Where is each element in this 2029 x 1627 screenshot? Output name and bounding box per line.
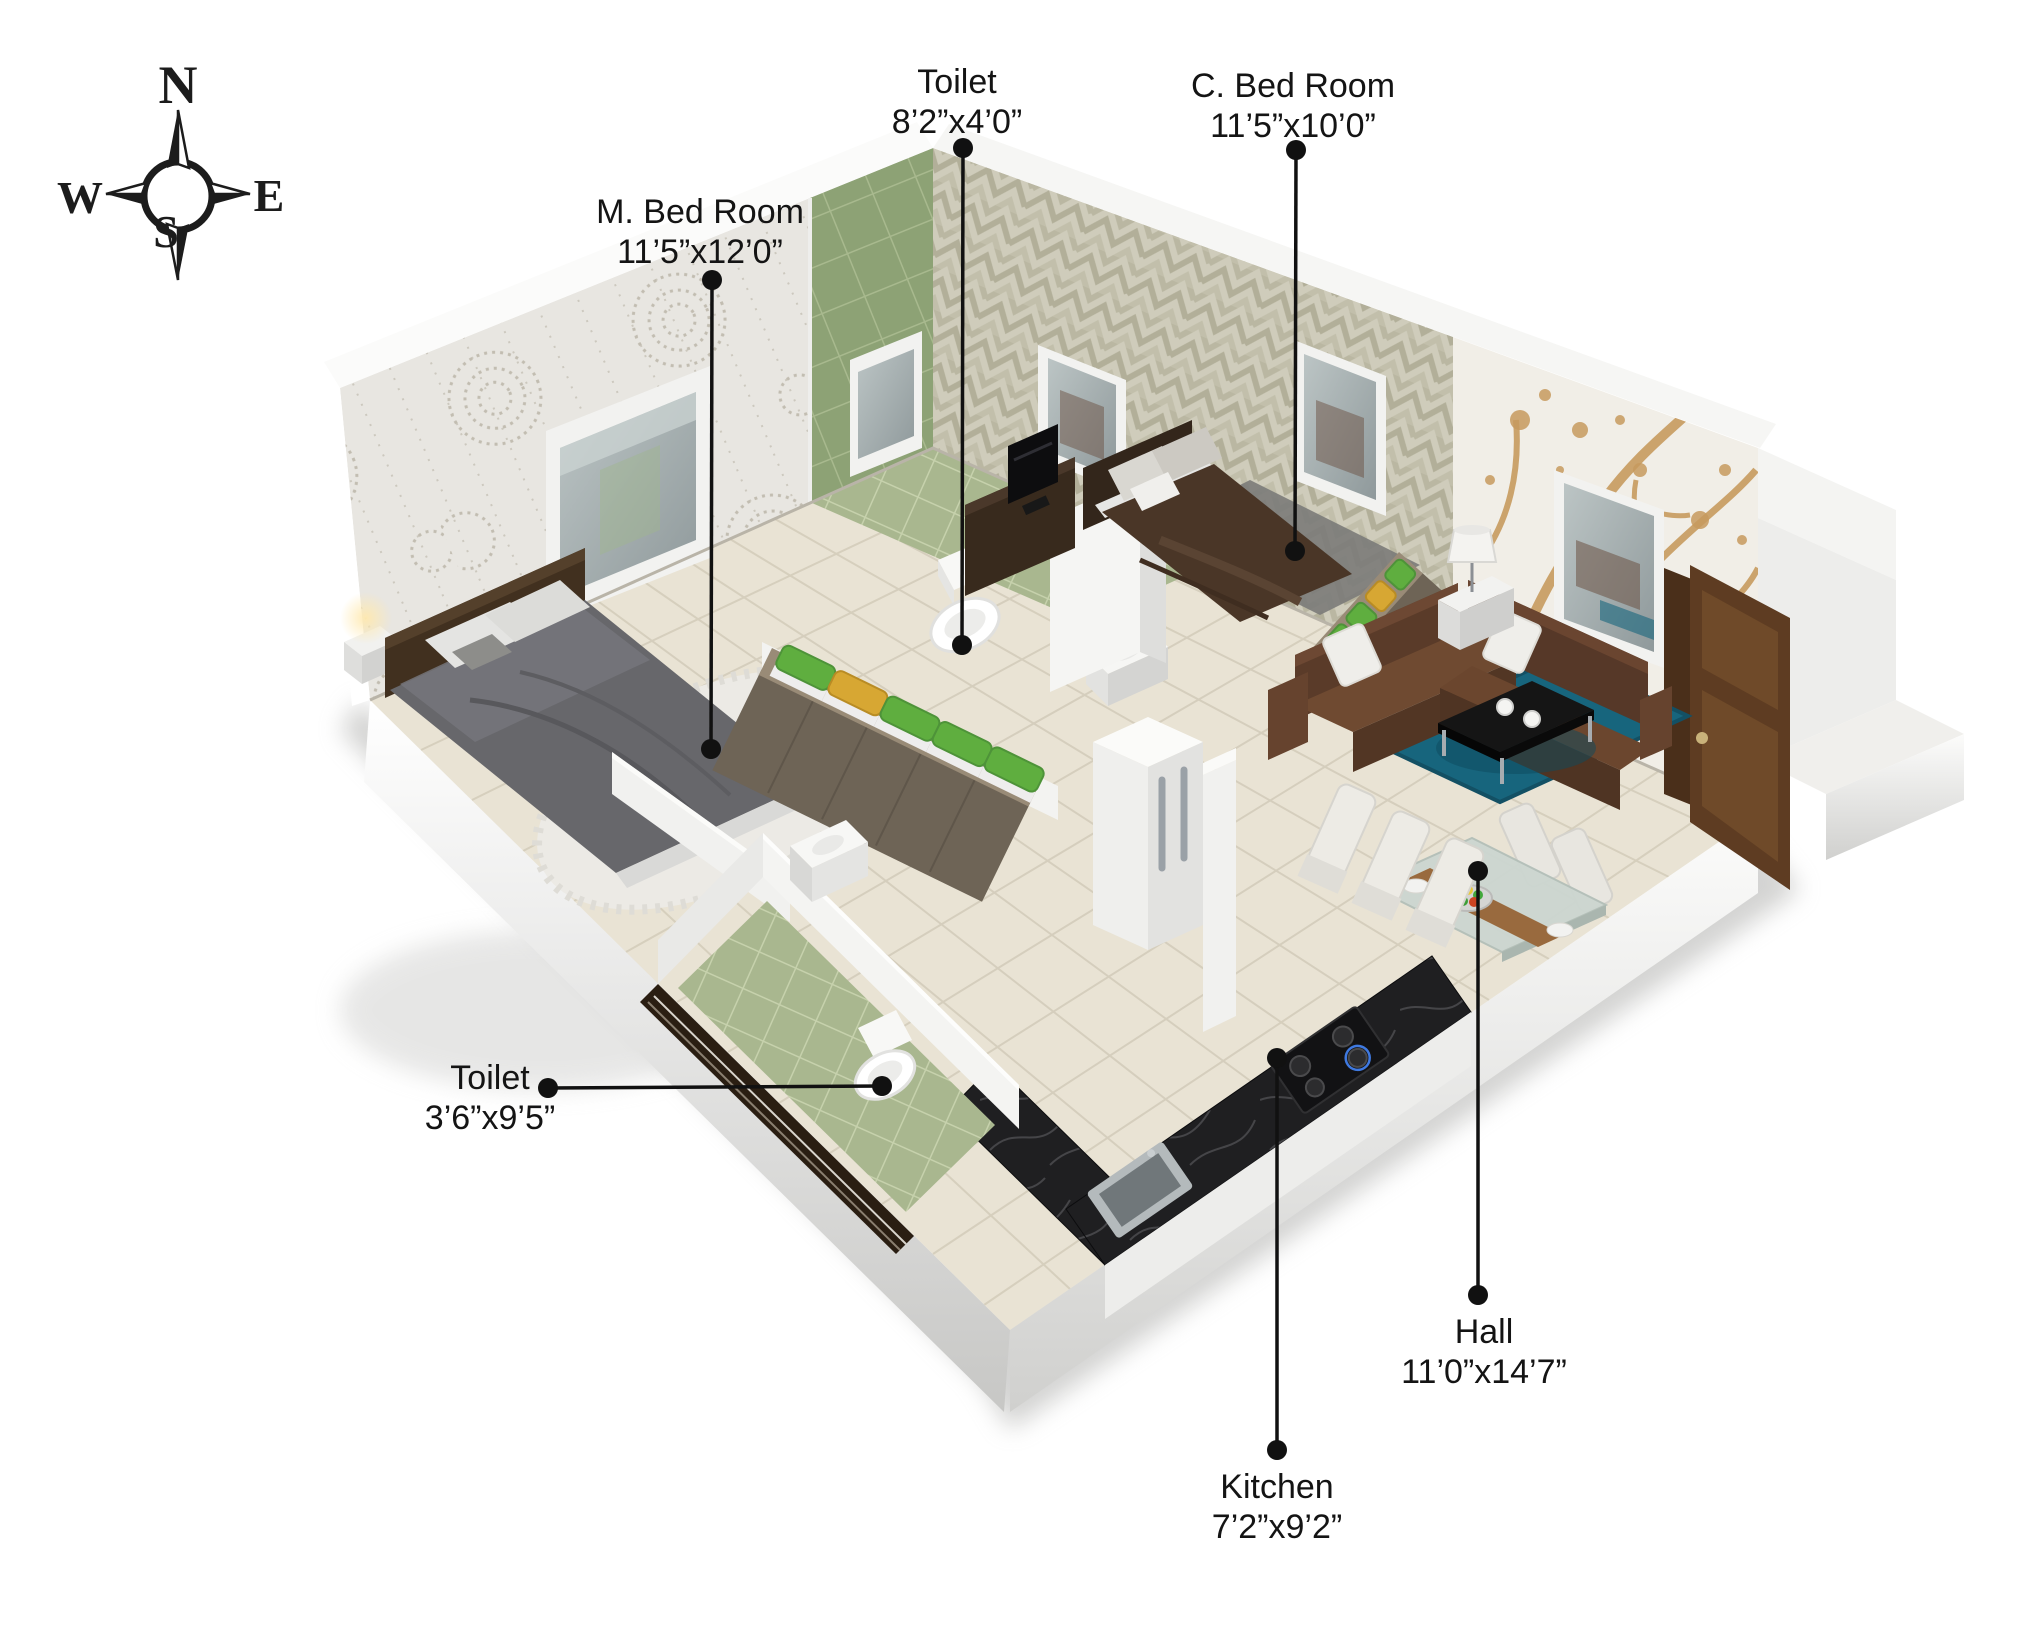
compass-e: E xyxy=(254,170,285,221)
floor-plan-page: N W E S Toilet 8’2”x4’0” C. Bed Room 11’… xyxy=(0,0,2029,1627)
label-toilet-top: Toilet 8’2”x4’0” xyxy=(892,62,1022,142)
label-hall: Hall 11’0”x14’7” xyxy=(1401,1312,1567,1392)
room-name: Hall xyxy=(1401,1312,1567,1352)
compass-w: W xyxy=(57,172,103,223)
room-name: C. Bed Room xyxy=(1191,66,1395,106)
label-m-bed-room: M. Bed Room 11’5”x12’0” xyxy=(596,192,804,272)
label-toilet-left: Toilet 3’6”x9’5” xyxy=(425,1058,555,1138)
compass-s: S xyxy=(153,206,179,257)
isometric-floor-plan: N W E S xyxy=(0,0,2029,1627)
room-name: Kitchen xyxy=(1212,1467,1342,1507)
bedside-lamp-icon xyxy=(340,592,392,644)
cup-icon xyxy=(1524,711,1540,727)
room-dims: 11’5”x12’0” xyxy=(596,232,804,272)
compass-rose: N W E S xyxy=(57,55,284,280)
kitchen-wall xyxy=(1203,760,1236,1032)
room-name: Toilet xyxy=(892,62,1022,102)
compass-n: N xyxy=(159,55,198,115)
label-kitchen: Kitchen 7’2”x9’2” xyxy=(1212,1467,1342,1547)
room-dims: 3’6”x9’5” xyxy=(425,1098,555,1138)
room-name: M. Bed Room xyxy=(596,192,804,232)
cup-icon xyxy=(1497,699,1513,715)
room-dims: 11’5”x10’0” xyxy=(1191,106,1395,146)
room-dims: 11’0”x14’7” xyxy=(1401,1352,1567,1392)
room-dims: 7’2”x9’2” xyxy=(1212,1507,1342,1547)
fridge xyxy=(1093,717,1203,950)
room-dims: 8’2”x4’0” xyxy=(892,102,1022,142)
label-c-bed-room: C. Bed Room 11’5”x10’0” xyxy=(1191,66,1395,146)
room-name: Toilet xyxy=(425,1058,555,1098)
